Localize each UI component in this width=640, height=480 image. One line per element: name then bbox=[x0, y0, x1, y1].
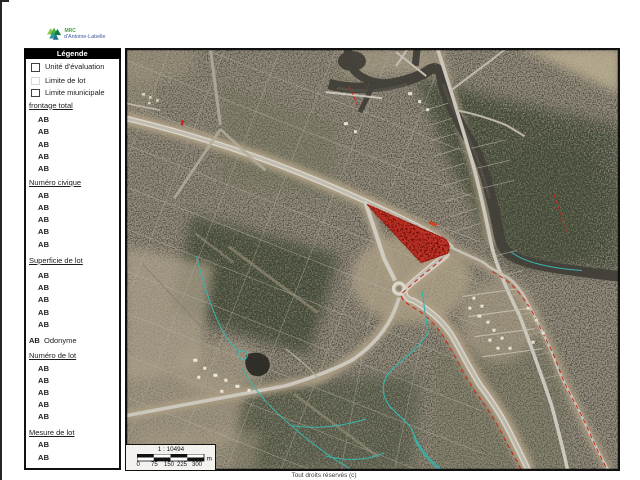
svg-text:m: m bbox=[207, 455, 212, 462]
